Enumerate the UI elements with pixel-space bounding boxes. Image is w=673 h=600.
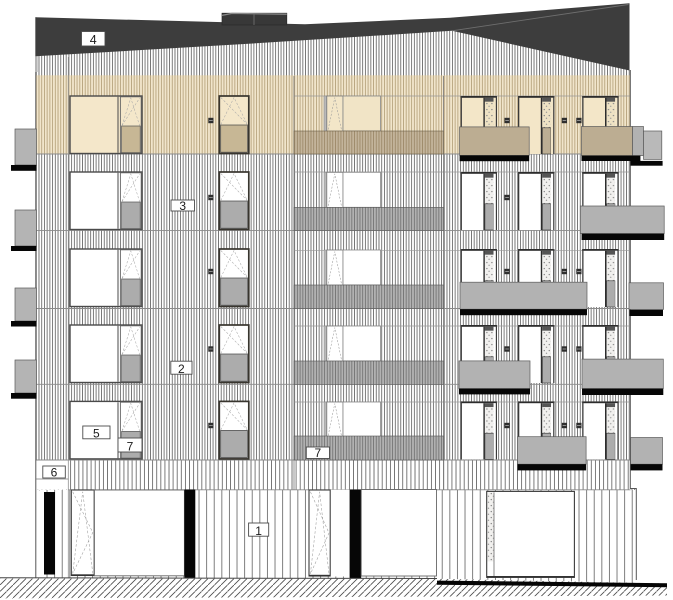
svg-text:2: 2 [178,362,185,376]
svg-text:7: 7 [127,440,134,454]
svg-text:6: 6 [51,466,58,480]
svg-text:1: 1 [255,524,262,538]
svg-text:3: 3 [179,199,186,213]
svg-text:4: 4 [90,33,97,47]
svg-text:5: 5 [93,426,100,440]
svg-text:7: 7 [315,446,322,460]
